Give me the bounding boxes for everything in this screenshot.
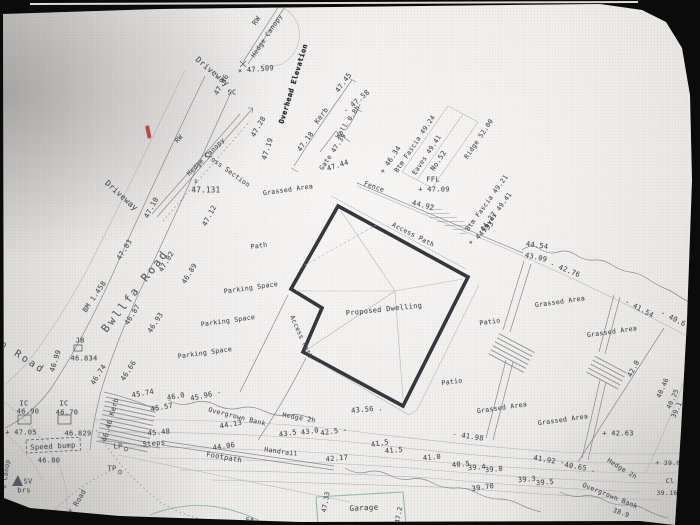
plan-label: 43.56 .: [351, 405, 383, 415]
plan-label: Cross Section: [203, 151, 251, 188]
plan-label: 44.92: [411, 200, 435, 212]
plan-label: + 39.0: [655, 460, 680, 467]
plan-label: Parking Space: [177, 346, 232, 360]
plan-label: 45.74: [131, 389, 154, 400]
plan-label: 46.66: [120, 360, 138, 383]
plan-label: 46.834: [70, 356, 97, 363]
plan-labels-layer: DrivewayRWHedge Canopy× 47.50947.46SCDri…: [0, 0, 700, 525]
plan-label: Cl: [666, 478, 674, 485]
photographed-site-plan: DrivewayRWHedge Canopy× 47.50947.46SCDri…: [0, 0, 700, 525]
plan-label: 46.46 Kerb: [101, 397, 120, 442]
plan-label: 42.5 -: [320, 427, 348, 438]
plan-label: 43.0: [301, 427, 320, 436]
plan-label: 45.57: [150, 403, 173, 414]
plan-paper: DrivewayRWHedge Canopy× 47.50947.46SCDri…: [0, 0, 700, 525]
plan-label: - 42.76: [549, 261, 581, 279]
plan-label: 46.829: [64, 431, 91, 438]
plan-label: 39.3: [518, 476, 537, 485]
plan-label: 43.5: [279, 429, 298, 438]
plan-label: 46.74: [90, 364, 108, 387]
plan-label: + 42.63: [602, 431, 634, 438]
plan-label: RW: [174, 134, 184, 145]
plan-label: 42.17: [325, 455, 348, 464]
plan-label: FFL: [426, 177, 440, 184]
road-name-fragment: p Road: [0, 340, 46, 377]
plan-label: Ridge 52.00: [463, 118, 494, 160]
plan-label: 39.4: [468, 464, 487, 473]
plan-label: RW: [252, 15, 263, 26]
plan-label: Hedge 2h: [282, 412, 316, 424]
plan-label: - 40.6: [659, 310, 686, 329]
plan-label: Steps: [142, 440, 165, 449]
plan-label: SC: [227, 90, 236, 97]
plan-label: - 41.98: [452, 431, 484, 442]
screen-edge-highlight: [30, 1, 638, 5]
plan-label: 43.09: [524, 252, 548, 264]
plan-label: + 47.09: [418, 187, 450, 194]
plan-label: LP: [113, 444, 122, 451]
plan-label: IC: [19, 401, 28, 408]
plan-label: Grassed Area: [587, 325, 638, 338]
plan-label: 45.96 -: [190, 389, 222, 402]
plan-label: 47.10: [144, 196, 161, 219]
plan-label: 46.99: [49, 349, 63, 373]
plan-label: 46.70: [56, 410, 79, 417]
plan-label: 47.12: [202, 204, 219, 227]
plan-label: Driveway: [103, 179, 139, 212]
plan-label: × 47.509: [238, 65, 275, 75]
plan-label: e Canop: [1, 459, 12, 489]
plan-label: BM 1.458: [82, 280, 108, 314]
plan-label: Overgrown Bank: [581, 482, 638, 510]
plan-label: 39.5: [536, 479, 555, 488]
plan-label: 46.90: [17, 409, 40, 416]
plan-label: 47.2: [394, 506, 403, 524]
plan-label: IC: [59, 401, 68, 408]
plan-label: TP: [107, 466, 116, 473]
plan-label: brs: [17, 488, 31, 495]
plan-label: 41.92 -: [533, 455, 565, 467]
plan-label: 44.06: [212, 442, 235, 452]
plan-label: Grassed Area: [535, 295, 586, 308]
plan-label: 46.93: [147, 312, 165, 335]
plan-label: 47.45: [335, 72, 354, 94]
plan-label: 40.46: [656, 377, 671, 399]
plan-label: 41.5: [385, 447, 404, 456]
plan-label: Parking Space: [223, 281, 278, 295]
plan-label: 45.48: [147, 429, 170, 438]
plan-label: 40.65 .: [564, 462, 596, 474]
plan-label: Grassed Area: [263, 183, 314, 196]
plan-label: Hedge 2h: [606, 457, 638, 480]
plan-label: 47.33: [321, 491, 331, 513]
plan-label: 47.19: [261, 137, 275, 161]
plan-label: 47.131: [192, 186, 221, 194]
plan-label: 47.18: [297, 131, 316, 153]
plan-label: Grassed Area: [477, 401, 528, 414]
plan-label: Speed bump: [30, 442, 75, 451]
plan-label: Access Path: [391, 222, 435, 249]
plan-label: 39.16: [656, 490, 677, 497]
garage-label: Garage: [349, 503, 378, 512]
plan-label: 47.03: [116, 239, 134, 262]
plan-label: Grassed Area: [538, 413, 589, 426]
plan-label: JB: [75, 338, 84, 345]
proposed-dwelling-label: Proposed Dwelling: [345, 303, 422, 318]
plan-label: 38.9: [612, 507, 630, 519]
bold-annotation: Overhead Elevation: [279, 43, 310, 124]
plan-label: Parking Space: [200, 314, 255, 328]
plan-label: 41.0: [423, 454, 442, 463]
plan-label: Path: [250, 242, 268, 251]
plan-label: SV: [23, 479, 32, 486]
plan-label: 46.0: [166, 392, 185, 402]
plan-label: 39.0: [485, 466, 504, 475]
plan-label: Handrail: [264, 446, 298, 457]
plan-label: 47.28: [250, 115, 267, 138]
plan-label: Ea: [246, 516, 255, 523]
plan-label: + 47.05: [5, 430, 37, 437]
plan-label: Patio: [441, 377, 463, 386]
plan-label: of Road: [66, 489, 88, 520]
plan-label: 39.70: [471, 483, 494, 493]
plan-label: Fence: [363, 180, 385, 193]
plan-label: Patio: [479, 317, 501, 326]
plan-label: 44.13: [219, 420, 242, 431]
plan-label: 44.54: [525, 241, 548, 251]
plan-label: - 41.54: [623, 298, 654, 319]
plan-label: Access Path: [289, 315, 314, 360]
plan-label: 46.89: [181, 263, 199, 286]
plan-label: 46.80: [38, 458, 61, 465]
plan-label: Kerb: [314, 107, 330, 126]
plan-label: 42.0: [627, 359, 642, 378]
plan-label: s: [194, 179, 198, 185]
plan-label: Footpath: [206, 451, 243, 464]
